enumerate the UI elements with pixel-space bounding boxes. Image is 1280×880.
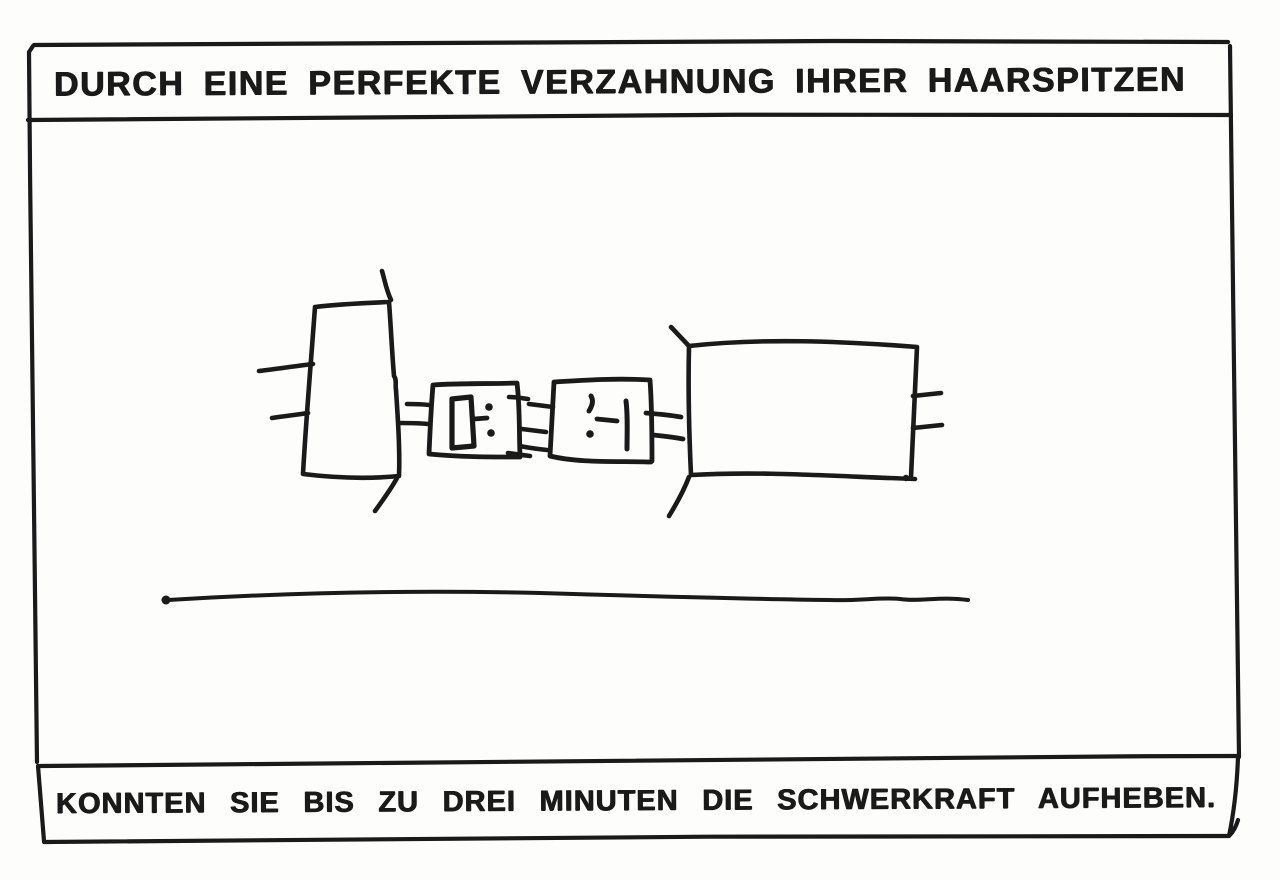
left-figure-body — [303, 302, 399, 478]
hair-tooth-1 — [509, 397, 528, 399]
right-figure-neck-dash-lower — [653, 435, 683, 439]
bottom-caption-box-top-line — [40, 756, 1237, 766]
hair-tooth-3 — [522, 429, 546, 432]
left-figure-leg-lower — [272, 413, 308, 418]
right-figure — [669, 327, 942, 516]
right-face-eye-dot — [586, 430, 594, 438]
comic-page: DURCH EINE PERFEKTE VERZAHNUNG IHRER HAA… — [0, 0, 1280, 880]
left-face-nose-dash — [474, 418, 487, 419]
left-figure-lower-arm — [375, 478, 397, 511]
right-figure-leg-lower — [913, 425, 942, 428]
left-figure-leg-upper — [259, 364, 313, 371]
right-figure-pen-dot — [903, 475, 909, 481]
hair-tooth-4 — [520, 446, 547, 450]
left-face-eye-dot-upper — [485, 403, 493, 411]
left-face-mouth-rect — [452, 397, 474, 448]
panel-frame — [28, 41, 1239, 842]
right-head — [550, 379, 683, 462]
interlocked-hair-teeth — [508, 397, 553, 456]
ground-line — [162, 592, 969, 605]
bottom-caption-box-left-edge — [38, 766, 44, 841]
left-figure-upper-arm — [382, 271, 391, 300]
top-caption-box-top-line — [34, 41, 1228, 45]
ground-line-stroke — [168, 592, 968, 600]
bottom-caption-box-right-edge — [1229, 757, 1238, 836]
right-face-nose-dash — [597, 419, 617, 421]
right-face-profile-line — [626, 401, 627, 449]
bottom-caption-box-bottom-line — [44, 836, 1228, 842]
right-figure-lower-arm — [669, 477, 689, 516]
left-figure-neck-dash-upper — [407, 404, 429, 405]
left-face-eye-dot-lower — [487, 429, 495, 437]
hair-tooth-5 — [508, 453, 530, 456]
caption-bottom: KONNTEN SIE BIS ZU DREI MINUTEN DIE SCHW… — [56, 766, 1216, 836]
right-figure-leg-upper — [913, 393, 941, 396]
hair-tooth-2 — [529, 404, 553, 407]
caption-top: DURCH EINE PERFEKTE VERZAHNUNG IHRER HAA… — [54, 48, 1186, 117]
left-border — [29, 46, 37, 762]
cartoon-drawing — [0, 0, 1280, 880]
left-head — [429, 383, 520, 457]
right-figure-body — [689, 341, 917, 479]
right-border — [1230, 46, 1239, 757]
left-figure — [259, 271, 429, 511]
left-figure-neck-dash-lower — [400, 423, 428, 424]
right-figure-upper-arm — [671, 327, 689, 346]
right-face-eye-tick — [589, 396, 592, 411]
